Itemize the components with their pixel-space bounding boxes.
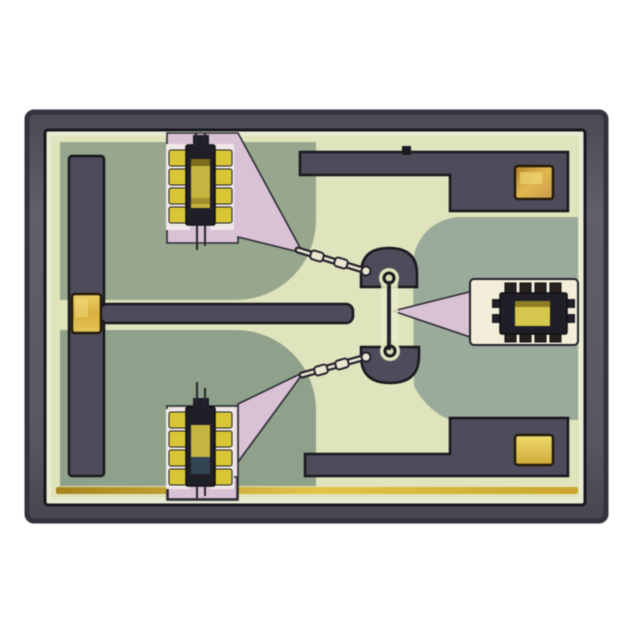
gold-bump — [213, 188, 232, 204]
gold-bump — [169, 169, 188, 185]
cell-core-band — [191, 198, 210, 204]
gold-bump — [213, 431, 232, 447]
gold-bump — [169, 207, 188, 223]
center-feed-bar — [100, 304, 353, 323]
gold-bump — [169, 469, 188, 485]
top-right-pad-highlight — [520, 172, 542, 184]
cell-core-band — [191, 159, 210, 166]
photo-canvas — [0, 0, 640, 640]
gold-bump — [213, 469, 232, 485]
gold-bump — [169, 450, 188, 466]
gold-bump — [169, 150, 188, 166]
gold-bump — [169, 412, 188, 428]
gold-bump — [169, 188, 188, 204]
cell-top-tab — [193, 398, 209, 408]
gold-bump — [213, 412, 232, 428]
die-photo — [0, 0, 640, 640]
bottom-right-bond-pad — [515, 435, 553, 465]
left-bond-pad-highlight — [75, 299, 88, 317]
gold-bump — [213, 169, 232, 185]
cell-core-teal — [191, 457, 210, 474]
gold-bump — [213, 450, 232, 466]
gold-bump — [169, 431, 188, 447]
top-trace-tab — [402, 146, 411, 155]
cell-core-band — [515, 301, 550, 307]
wire-terminal — [362, 267, 371, 276]
gold-bump — [213, 150, 232, 166]
gold-bump — [213, 207, 232, 223]
wire-terminal — [362, 353, 371, 362]
bottom-gold-edge-line — [56, 487, 578, 494]
